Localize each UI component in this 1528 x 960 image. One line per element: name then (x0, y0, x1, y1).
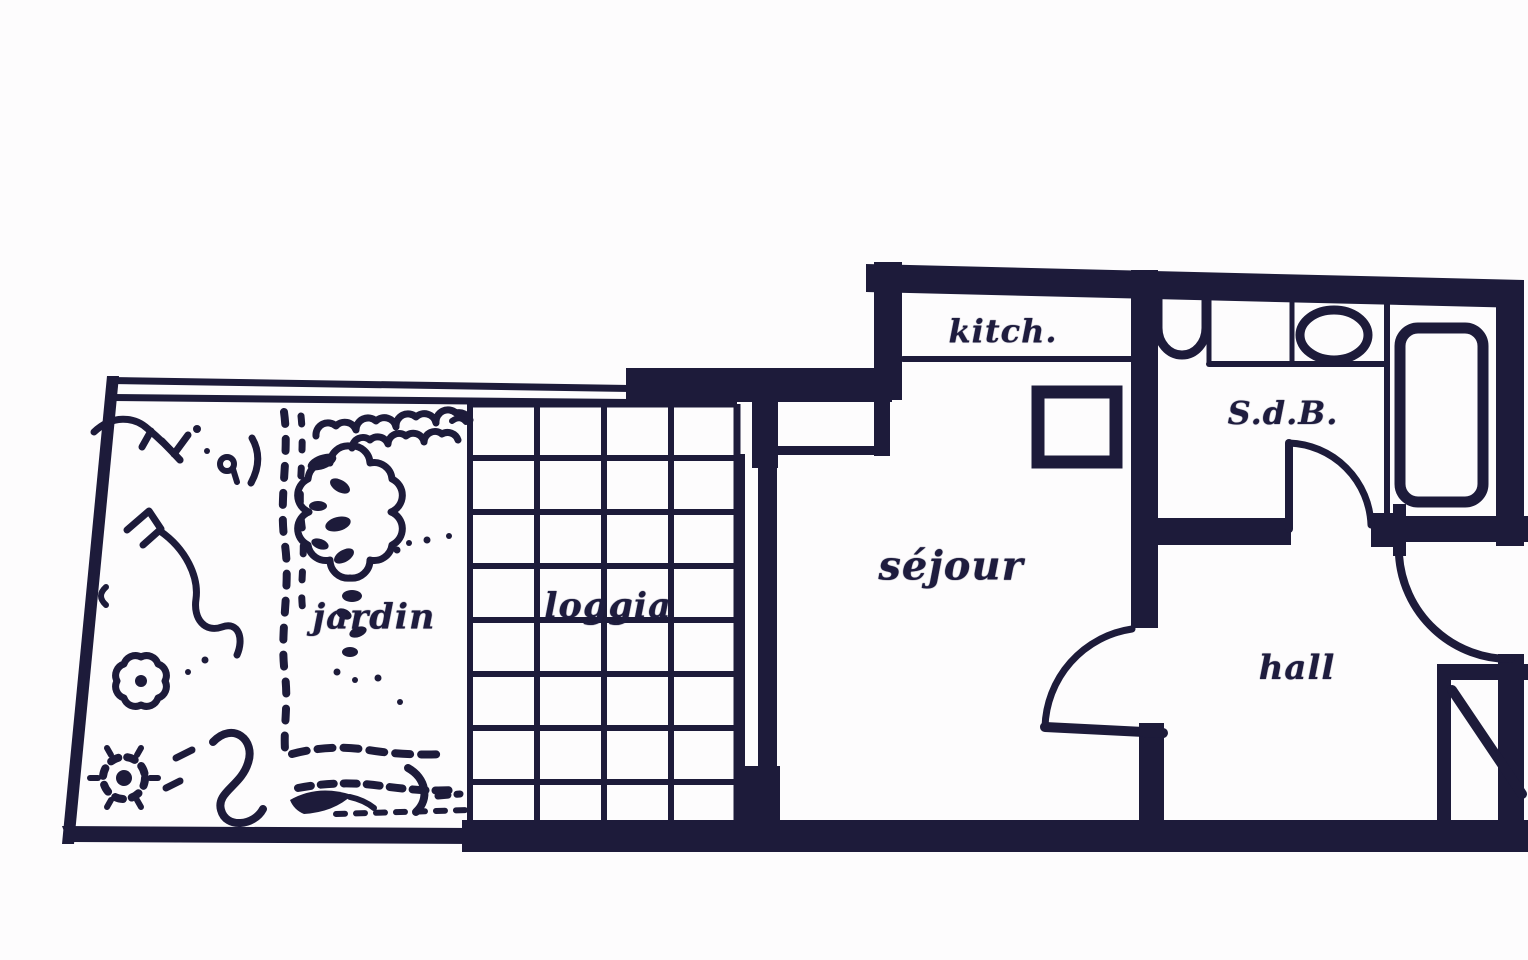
duct-box (1038, 392, 1116, 462)
room-label-sejour: séjour (878, 543, 1023, 590)
middle-wall (1131, 270, 1158, 628)
kitchen-top-wall (866, 264, 1524, 308)
bathroom-bottom-wall (1133, 518, 1291, 545)
sejour-window-line-inner (758, 466, 777, 768)
sejour-hall-door-leaf (1045, 727, 1163, 733)
floor-plan-page: jardin loggia séjour kitch. S.d.B. hall (0, 0, 1528, 960)
sejour-hall-door-arc (1045, 629, 1132, 727)
bathtub-icon (1400, 328, 1483, 502)
floor-plan-drawing (0, 0, 1528, 960)
garden-left-edge (62, 376, 119, 844)
right-wall-upper (1496, 300, 1524, 546)
sejour-window-sill (760, 446, 888, 455)
room-label-loggia: loggia (544, 586, 672, 627)
toilet-icon (1158, 296, 1206, 355)
sejour-window-line-outer (736, 454, 745, 768)
room-label-jardin: jardin (313, 597, 436, 638)
sejour-left-wall-bottom (736, 766, 780, 836)
wall-below-sejour-door (1139, 723, 1164, 835)
bathroom-door-arc (1289, 443, 1371, 525)
tub-niche-bottom-wall (1386, 516, 1528, 542)
garden-bottom-edge (62, 826, 472, 844)
room-label-hall: hall (1259, 648, 1336, 688)
bottom-outer-wall (462, 820, 1528, 852)
entry-door-arc (1399, 555, 1511, 659)
room-label-bathroom: S.d.B. (1228, 394, 1339, 432)
room-label-kitchen: kitch. (949, 312, 1058, 350)
entry-door-stub (1393, 504, 1406, 556)
garden-top-rail-inner (111, 394, 630, 406)
sejour-window-right-stub (874, 396, 890, 456)
garden-top-rail-outer (109, 377, 630, 392)
kitchen-left-wall (874, 262, 902, 400)
right-wall-lower (1498, 654, 1524, 848)
sink-icon (1300, 310, 1368, 360)
sejour-left-wall-top (752, 396, 778, 468)
